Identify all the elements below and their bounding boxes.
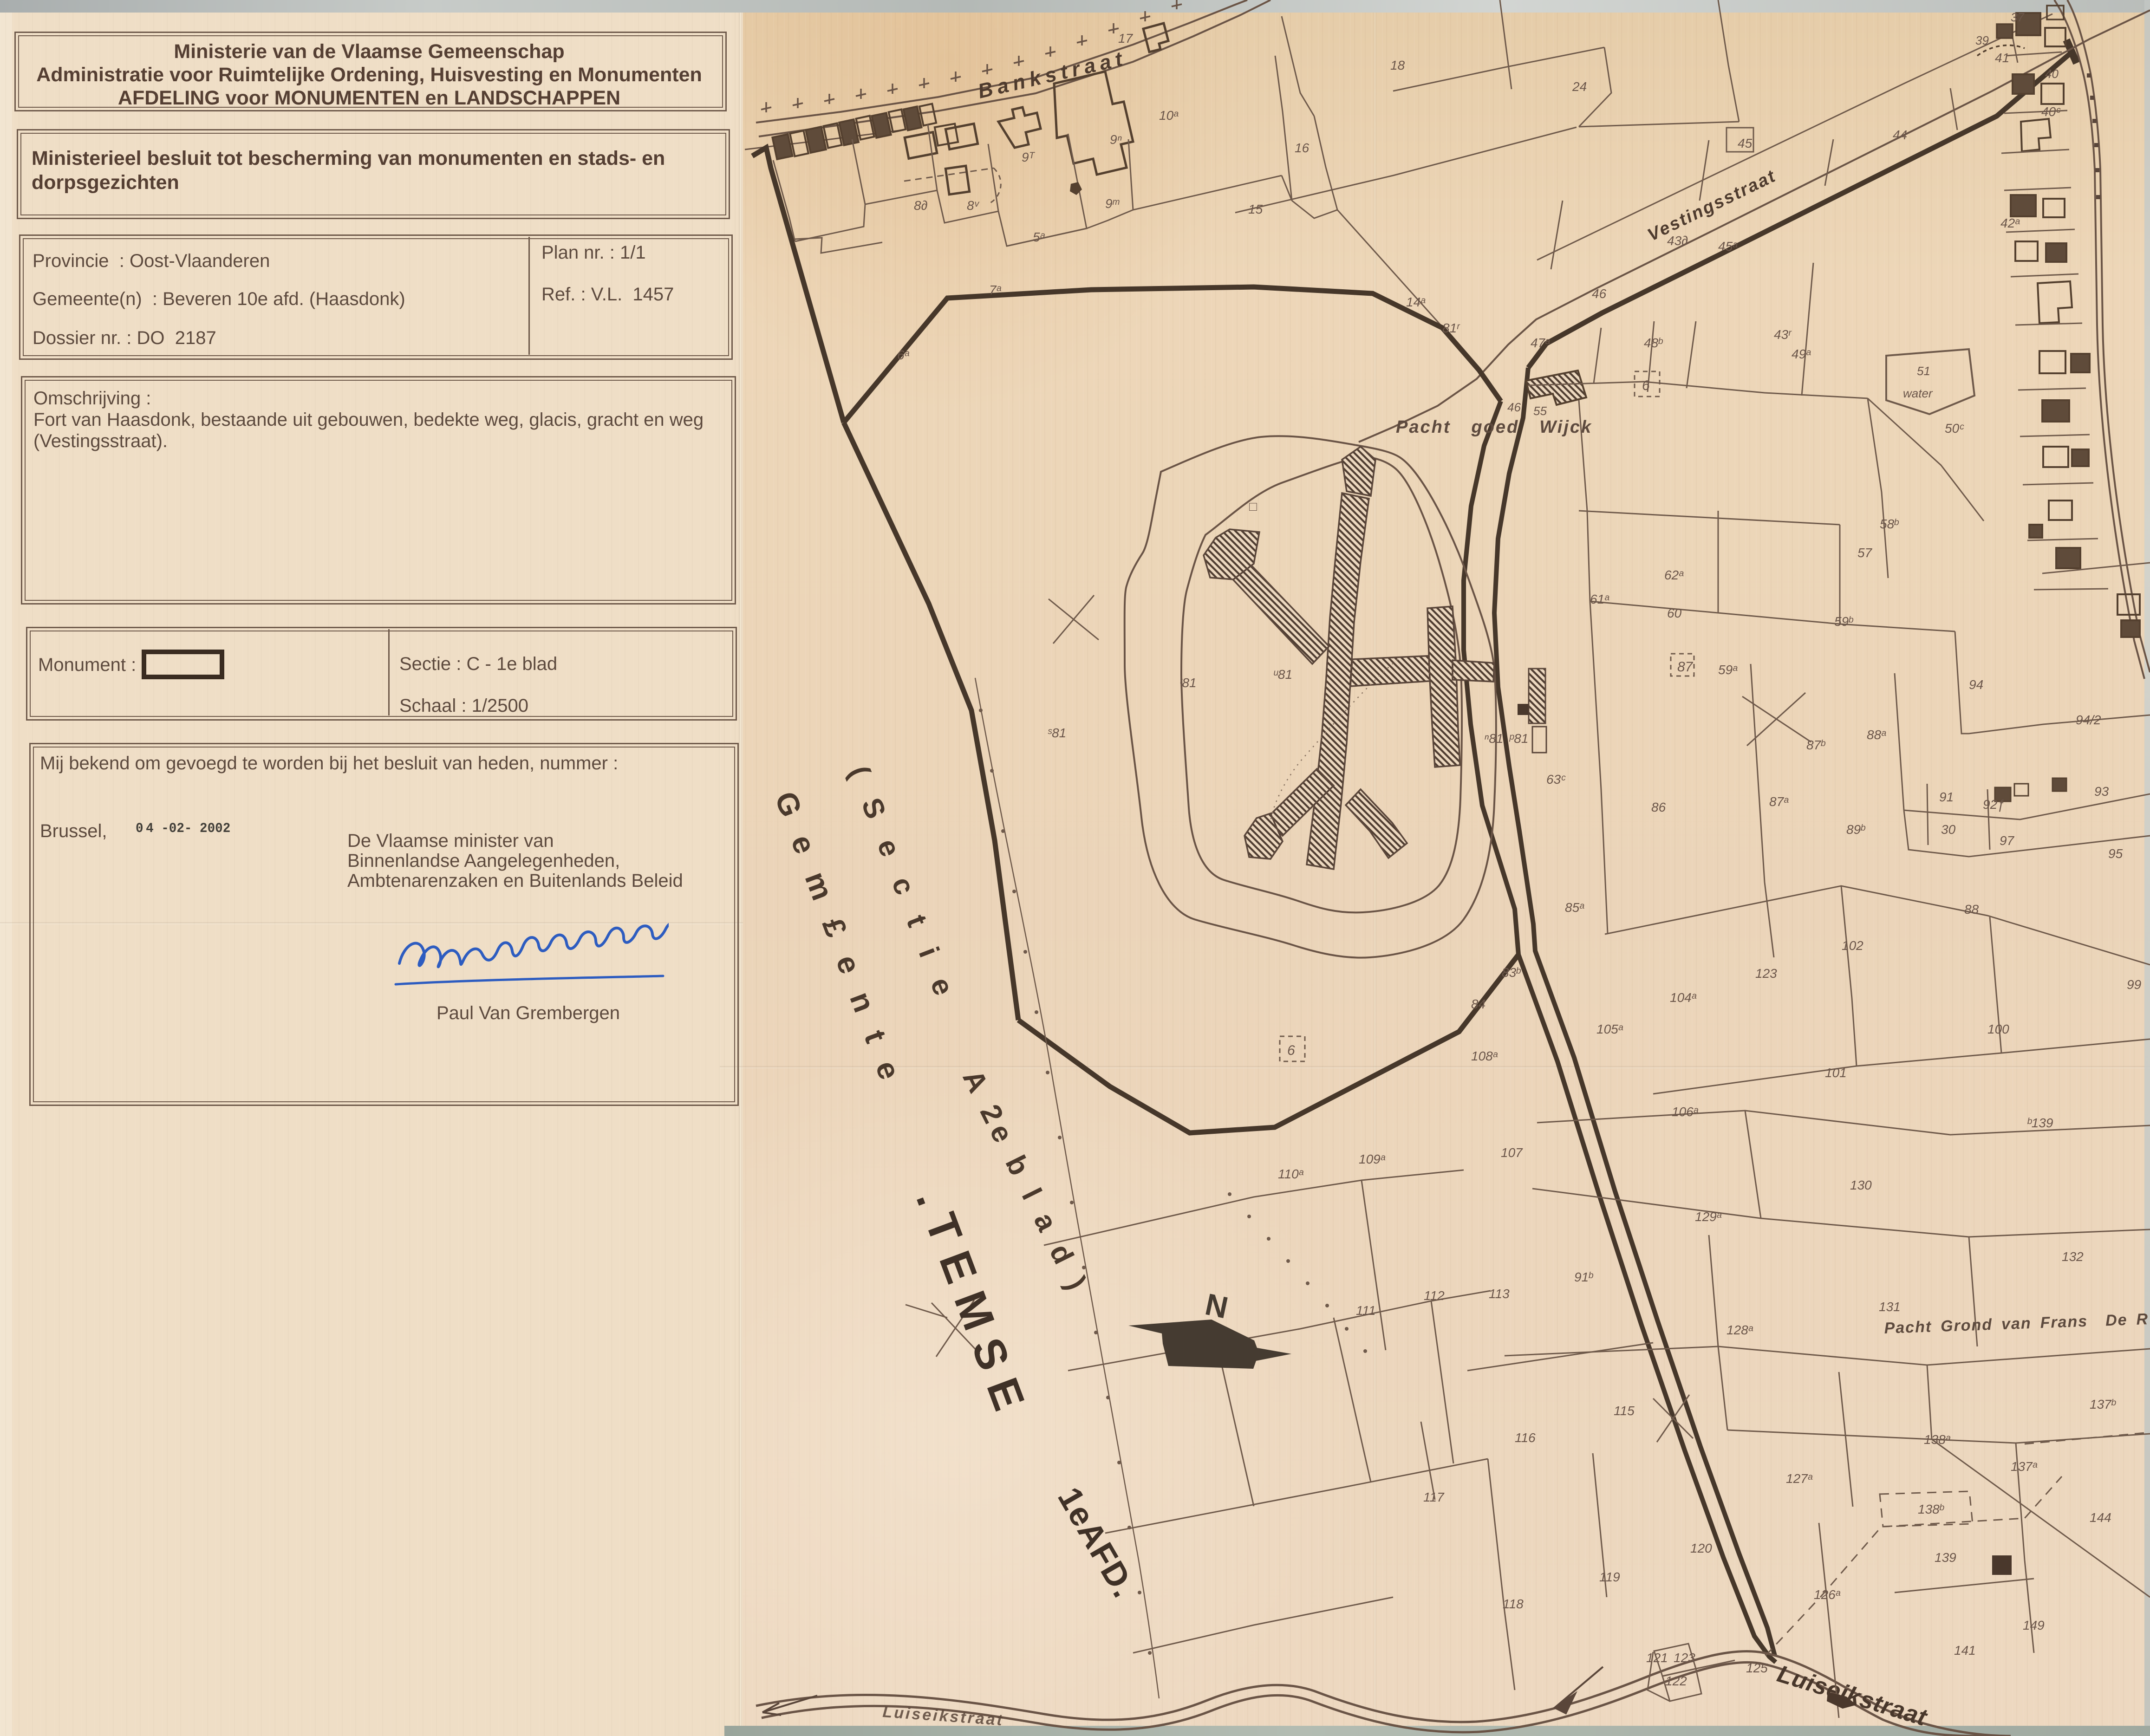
svg-text:46: 46 [1507, 400, 1521, 414]
svg-text:118: 118 [1503, 1597, 1524, 1611]
svg-text:144: 144 [2090, 1510, 2111, 1525]
svg-text:8∂: 8∂ [914, 198, 928, 213]
svg-text:131: 131 [1879, 1300, 1901, 1314]
svg-text:130: 130 [1850, 1178, 1872, 1192]
svg-text:94: 94 [1969, 677, 1983, 692]
svg-text:61ᵃ: 61ᵃ [1590, 592, 1609, 606]
svg-text:.TEMSE: .TEMSE [906, 1183, 1038, 1429]
svg-text:94/2: 94/2 [2076, 713, 2101, 727]
svg-text:18: 18 [1390, 58, 1405, 72]
svg-text:139: 139 [1935, 1550, 1956, 1565]
svg-text:40: 40 [2045, 67, 2059, 81]
svg-text:N: N [1202, 1287, 1231, 1325]
svg-text:46: 46 [1592, 286, 1607, 301]
svg-text:Pacht goed Wijck: Pacht goed Wijck [1396, 417, 1592, 437]
svg-text:88: 88 [1964, 902, 1979, 917]
svg-text:41: 41 [1995, 51, 2009, 65]
svg-text:45ᵃ: 45ᵃ [1718, 239, 1738, 254]
svg-text:42ᵃ: 42ᵃ [2000, 216, 2020, 230]
svg-text:104ᵃ: 104ᵃ [1670, 990, 1697, 1005]
svg-text:127ᵃ: 127ᵃ [1786, 1471, 1813, 1486]
svg-text:37: 37 [2011, 10, 2025, 24]
svg-text:149: 149 [2023, 1618, 2045, 1632]
svg-text:89ᵇ: 89ᵇ [1846, 822, 1865, 837]
svg-text:93: 93 [2094, 784, 2109, 799]
svg-text:49ᵃ: 49ᵃ [1792, 347, 1811, 361]
svg-text:122: 122 [1665, 1674, 1687, 1688]
svg-text:99: 99 [2127, 977, 2141, 992]
svg-text:129ᵃ: 129ᵃ [1695, 1209, 1722, 1224]
svg-text:Luiseikstraat: Luiseikstraat [882, 1703, 1004, 1729]
svg-text:87ᵃ: 87ᵃ [1769, 794, 1789, 809]
svg-text:87: 87 [1677, 659, 1694, 675]
svg-text:85ᵃ: 85ᵃ [1565, 900, 1584, 915]
svg-text:110ᵃ: 110ᵃ [1278, 1167, 1304, 1181]
svg-text:113: 113 [1489, 1287, 1510, 1301]
svg-text:115: 115 [1614, 1404, 1635, 1418]
svg-text:45: 45 [1738, 136, 1753, 150]
svg-text:30: 30 [1941, 822, 1956, 837]
svg-text:43∂: 43∂ [1667, 234, 1688, 248]
svg-text:10ᵃ: 10ᵃ [1159, 108, 1179, 123]
svg-text:40ᶜ: 40ᶜ [2041, 104, 2061, 119]
svg-text:ᵇ139: ᵇ139 [2027, 1116, 2053, 1130]
svg-text:100: 100 [1987, 1022, 2009, 1036]
svg-text:9ⁿ: 9ⁿ [1110, 132, 1122, 147]
svg-text:60: 60 [1667, 606, 1682, 620]
svg-text:62ᵃ: 62ᵃ [1664, 568, 1684, 582]
svg-text:55: 55 [1533, 404, 1547, 418]
svg-text:91: 91 [1939, 790, 1954, 804]
svg-text:120: 120 [1690, 1541, 1712, 1555]
svg-text:□: □ [1249, 499, 1257, 514]
svg-text:14ᵃ: 14ᵃ [1406, 295, 1426, 309]
svg-text:50ᶜ: 50ᶜ [1945, 421, 1964, 436]
svg-text:57: 57 [1857, 546, 1873, 560]
svg-text:8ᵛ: 8ᵛ [967, 198, 980, 213]
svg-text:117: 117 [1423, 1490, 1445, 1504]
svg-text:Luiseikstraat: Luiseikstraat [1774, 1660, 1931, 1732]
svg-text:6ᵃ: 6ᵃ [897, 348, 910, 362]
svg-text:106ᵃ: 106ᵃ [1672, 1105, 1699, 1119]
svg-text:58ᵇ: 58ᵇ [1880, 517, 1899, 531]
svg-text:9ᵀ: 9ᵀ [1022, 150, 1036, 164]
svg-text:102: 102 [1842, 938, 1863, 953]
svg-text:137ᵃ: 137ᵃ [2011, 1459, 2038, 1474]
svg-text:123: 123 [1674, 1651, 1695, 1665]
svg-text:92ƒ: 92ƒ [1983, 797, 2005, 812]
svg-text:97: 97 [2000, 833, 2015, 848]
svg-text:ˢ81: ˢ81 [1048, 726, 1066, 740]
svg-text:112: 112 [1424, 1288, 1445, 1303]
svg-text:132: 132 [2062, 1249, 2084, 1264]
svg-text:138ᵇ: 138ᵇ [1918, 1502, 1944, 1516]
svg-text:86: 86 [1651, 800, 1666, 814]
svg-text:17: 17 [1118, 31, 1134, 46]
svg-text:6: 6 [1287, 1043, 1295, 1058]
svg-text:43ʳ: 43ʳ [1774, 327, 1792, 342]
svg-text:126ᵃ: 126ᵃ [1814, 1587, 1841, 1602]
svg-text:81ʳ: 81ʳ [1442, 321, 1460, 335]
svg-text:16: 16 [1295, 141, 1310, 155]
svg-text:59ᵇ: 59ᵇ [1834, 614, 1853, 629]
svg-text:95: 95 [2108, 846, 2123, 861]
svg-text:128ᵃ: 128ᵃ [1727, 1323, 1753, 1337]
svg-text:1eAFD.: 1eAFD. [1050, 1481, 1143, 1604]
svg-text:51: 51 [1917, 364, 1930, 378]
svg-text:91ᵇ: 91ᵇ [1574, 1270, 1593, 1284]
svg-text:44: 44 [1893, 128, 1907, 142]
svg-text:83ᵇ: 83ᵇ [1502, 965, 1521, 980]
svg-text:ᵖ81: ᵖ81 [1509, 731, 1528, 746]
svg-text:63ᶜ: 63ᶜ [1546, 772, 1566, 787]
svg-text:105ᵃ: 105ᵃ [1596, 1022, 1623, 1036]
svg-text:6: 6 [1642, 378, 1650, 393]
svg-text:111: 111 [1356, 1303, 1376, 1318]
svg-text:84: 84 [1471, 997, 1485, 1011]
svg-text:59ᵃ: 59ᵃ [1718, 663, 1738, 677]
svg-text:ᵘ81: ᵘ81 [1273, 667, 1292, 682]
svg-text:Pacht Grond van Frans De R: Pacht Grond van Frans De R [1884, 1310, 2149, 1337]
svg-text:125: 125 [1746, 1661, 1768, 1675]
svg-text:ᵗ81: ᵗ81 [1179, 676, 1197, 690]
svg-text:39: 39 [1975, 33, 1989, 47]
svg-text:5ᵃ: 5ᵃ [1033, 230, 1045, 244]
svg-text:15: 15 [1248, 202, 1263, 216]
svg-text:ⁿ81: ⁿ81 [1484, 731, 1503, 746]
svg-text:138ᵃ: 138ᵃ [1924, 1432, 1951, 1447]
svg-text:119: 119 [1599, 1570, 1620, 1584]
svg-text:108ᵃ: 108ᵃ [1471, 1049, 1498, 1063]
svg-text:141: 141 [1954, 1643, 1976, 1658]
svg-text:123: 123 [1755, 966, 1777, 981]
svg-text:109ᵃ: 109ᵃ [1359, 1152, 1386, 1166]
svg-text:107: 107 [1501, 1145, 1523, 1160]
svg-text:87ᵇ: 87ᵇ [1806, 738, 1825, 752]
svg-text:9ᵐ: 9ᵐ [1105, 196, 1120, 211]
svg-text:47ᵃ: 47ᵃ [1531, 336, 1550, 350]
svg-text:137ᵇ: 137ᵇ [2090, 1397, 2116, 1411]
svg-text:water: water [1903, 386, 1933, 400]
svg-text:121: 121 [1646, 1651, 1668, 1665]
svg-text:7ᵃ: 7ᵃ [989, 283, 1002, 297]
svg-text:88ᵃ: 88ᵃ [1867, 728, 1886, 742]
svg-text:116: 116 [1515, 1430, 1536, 1445]
svg-text:48ᵇ: 48ᵇ [1644, 336, 1663, 350]
svg-text:24: 24 [1572, 79, 1587, 94]
svg-text:101: 101 [1825, 1066, 1847, 1080]
